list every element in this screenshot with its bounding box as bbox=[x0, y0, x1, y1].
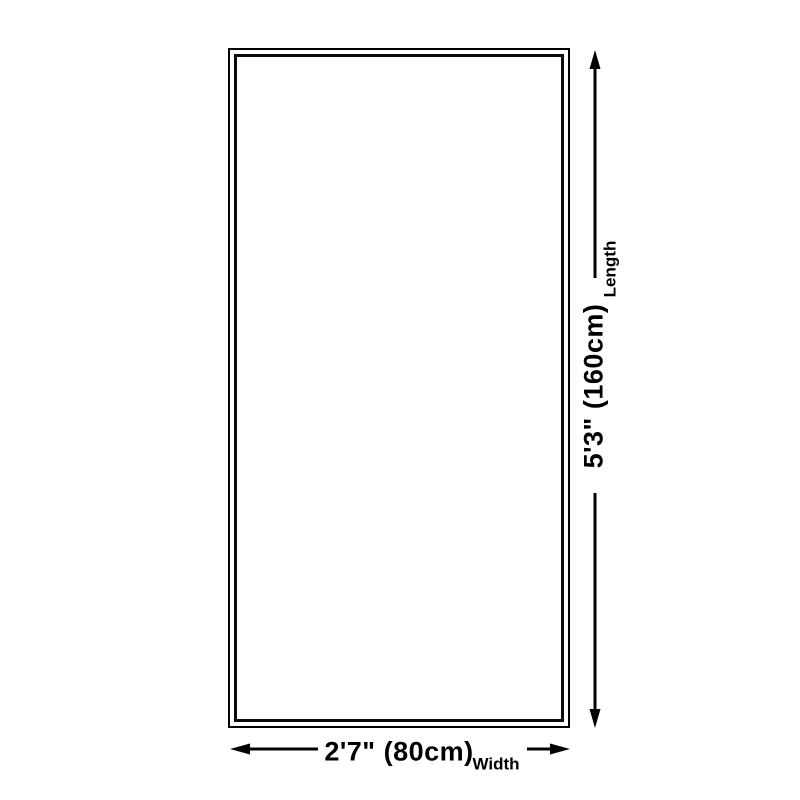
rug-outline bbox=[228, 48, 570, 728]
width-arrow-left-icon bbox=[230, 744, 318, 755]
length-arrow-up-icon bbox=[590, 50, 601, 278]
width-dimension-label: Width bbox=[472, 756, 519, 773]
length-dimension-label: Length bbox=[602, 241, 619, 298]
rug-outline-inner-border bbox=[234, 54, 564, 722]
width-arrow-right-icon bbox=[527, 744, 570, 755]
length-dimension-value: 5'3" (160cm) bbox=[581, 304, 608, 469]
length-arrow-down-icon bbox=[590, 493, 601, 728]
size-diagram: 5'3" (160cm) Length 2'7" (80cm) Width bbox=[0, 0, 800, 800]
width-dimension-value: 2'7" (80cm) bbox=[324, 739, 473, 766]
